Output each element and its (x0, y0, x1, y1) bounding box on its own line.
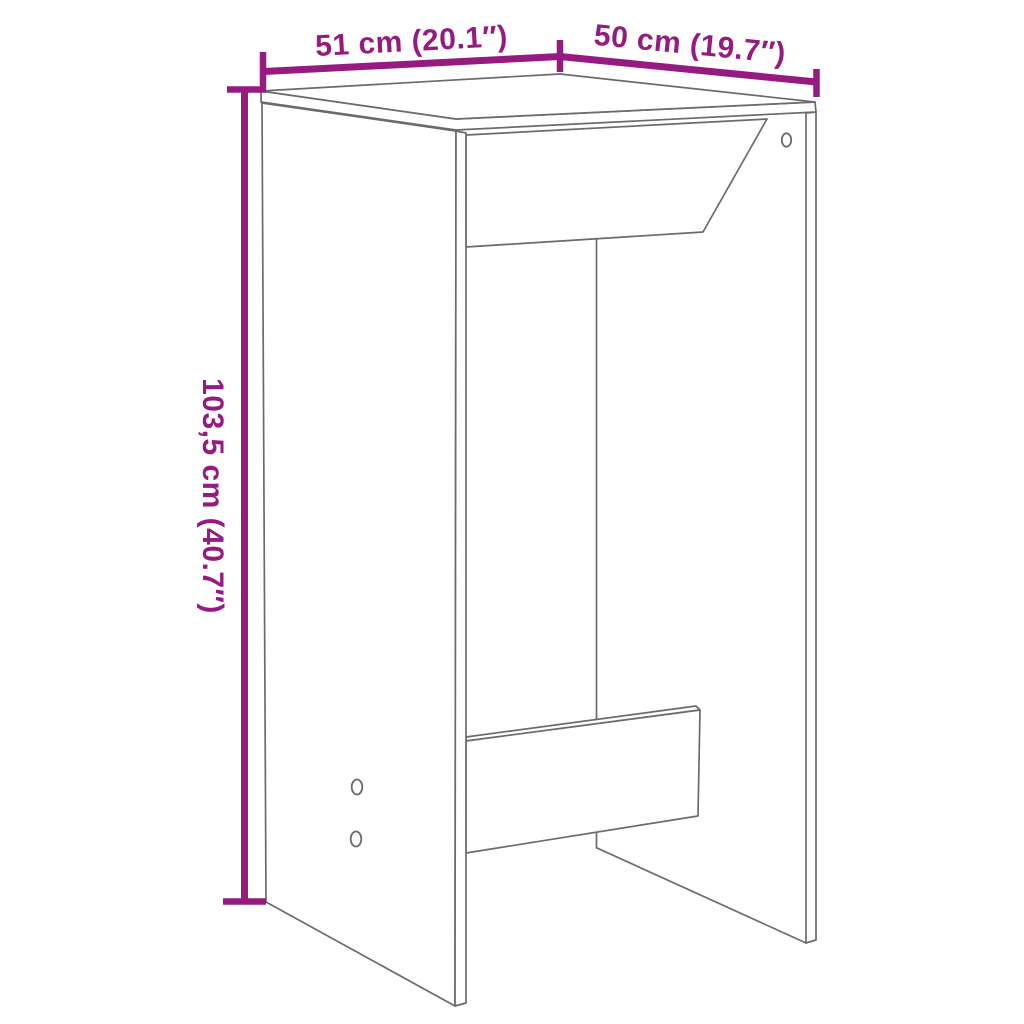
left-panel-front-edge (455, 131, 466, 1006)
table-drawing (261, 74, 816, 1006)
width-dimension-label: 51 cm (20.1″) (314, 20, 508, 63)
width-dimension-line (264, 57, 560, 72)
apron-panel (466, 119, 767, 247)
left-panel-face (262, 103, 456, 1006)
right-panel-front-edge (806, 112, 816, 943)
right-panel-hole (782, 133, 791, 146)
left-panel-hole-upper (352, 780, 363, 795)
dimension-diagram-page: 51 cm (20.1″) 50 cm (19.7″) 103,5 cm (40… (0, 0, 1024, 1024)
height-dimension-label: 103,5 cm (40.7″) (196, 378, 229, 614)
right-panel-bottom-edge (597, 848, 806, 943)
bar-table-dimension-diagram: 51 cm (20.1″) 50 cm (19.7″) 103,5 cm (40… (0, 0, 1024, 1024)
left-panel-hole-lower (351, 832, 362, 847)
